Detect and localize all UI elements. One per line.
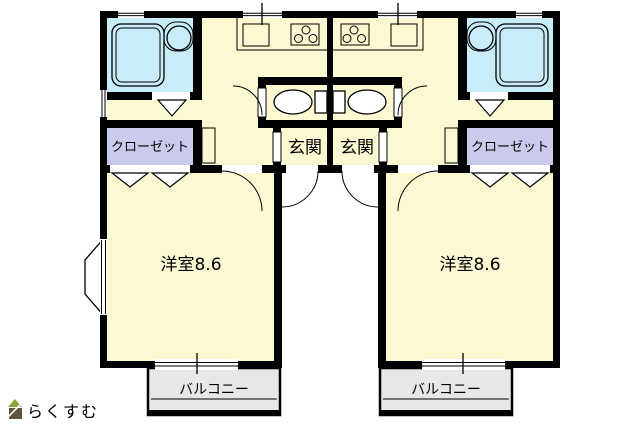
right-room-left-wall [378,165,386,368]
right-balcony-bottom-wall [380,410,512,415]
entrance-label-right: 玄関 [340,138,374,158]
right-toilet [333,90,386,114]
wc-block-bottom-wall [258,120,402,128]
toilet-icon [274,90,312,114]
room-label-right: 洋室8.6 [439,255,500,275]
room-label-left: 洋室8.6 [160,255,221,275]
left-room-right-wall [274,165,282,368]
right-room-door-leaf [445,128,458,163]
floor-plan: クローゼット クローゼット 玄関 玄関 洋室8.6 洋室8.6 バルコニー バル… [0,0,640,425]
mid-wall-seg-2 [190,165,222,173]
mid-wall-seg-1 [100,165,110,173]
mid-wall-seg-4 [318,165,342,173]
toilet-tank [315,91,327,113]
left-front-door-icon [282,165,318,207]
left-balcony-bottom-wall [148,410,280,415]
floor-plan-page: クローゼット クローゼット 玄関 玄関 洋室8.6 洋室8.6 バルコニー バル… [0,0,640,425]
toilet-icon [348,90,386,114]
wc-block-top-wall [258,77,402,85]
balcony-label-right: バルコニー [411,382,481,398]
mid-wall-seg-6 [438,165,470,173]
left-bathroom-side-wall [193,11,202,100]
entrance-label-left: 玄関 [288,138,322,158]
right-outer-wall [553,11,560,368]
toilet-tank [333,91,345,113]
left-entrance-partition-door-icon [273,132,281,162]
left-bathroom-window-icon [118,11,144,18]
site-logo: らくすむ [8,399,99,421]
bay-window-icon [85,237,107,317]
right-entrance-partition-door-icon [379,132,387,162]
center-party-wall [327,11,333,173]
right-front-door-icon [342,165,378,207]
left-toilet [274,90,327,114]
closet-label-right: クローゼット [471,140,549,155]
house-icon [8,399,22,419]
closet-label-left: クローゼット [111,140,189,155]
mid-wall-seg-7 [550,165,560,173]
right-closet-top-wall [458,120,560,128]
right-bathroom-side-wall [458,11,467,100]
left-room-door-leaf [202,128,215,163]
balcony-label-left: バルコニー [179,382,249,398]
right-bathroom-window-icon [516,11,542,18]
left-closet-top-wall [100,120,202,128]
logo-text: らくすむ [27,402,99,421]
left-side-window-icon [100,90,107,117]
left-bathroom-floor [107,18,193,92]
right-bathroom-floor [467,18,553,92]
